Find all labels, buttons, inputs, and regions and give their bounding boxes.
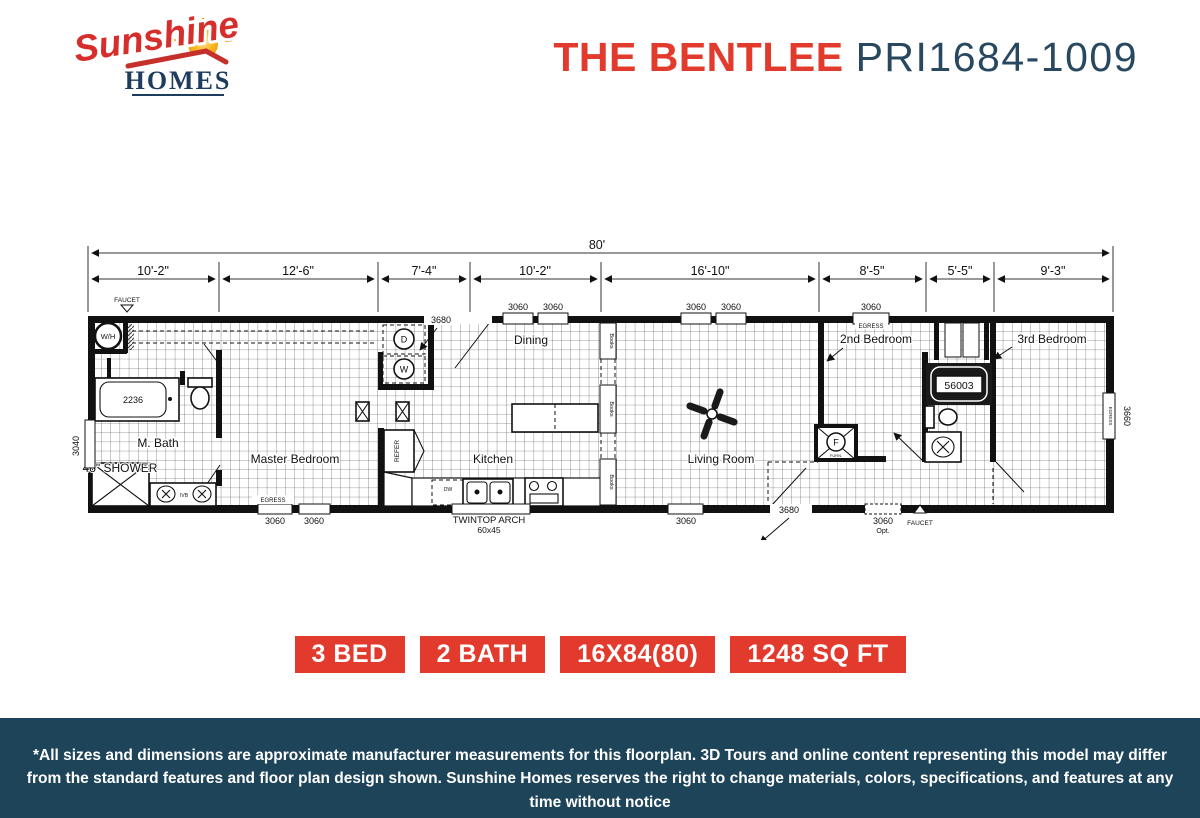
window-size: 3060 [265,516,285,526]
badge-sqft: 1248 SQ FT [730,636,905,673]
water-heater-label: W/H [101,332,116,341]
side-window-size: 3660 [1122,406,1132,426]
egress-label: EGRESS [1108,407,1113,426]
faucet-label: FAUCET [907,520,933,527]
window-size: 3060 [873,516,893,526]
bookcase-column: Books Books Books [600,323,616,505]
disclaimer-text: *All sizes and dimensions are approximat… [20,744,1180,814]
books-label: Books [608,474,614,490]
room-label-dining: Dining [514,333,548,347]
furnace-label: F [833,438,839,448]
refrigerator-label: REFER [394,440,401,462]
books-label: Books [608,401,614,417]
dim-segment: 10'-2" [137,264,169,278]
dishwasher-label: DW [444,487,453,493]
window-size: 3060 [508,302,528,312]
arch-size-label: 60x45 [477,525,500,535]
window-size: 3060 [543,302,563,312]
room-label-bed3: 3rd Bedroom [1017,332,1086,346]
disclaimer-footer: *All sizes and dimensions are approximat… [0,718,1200,818]
dim-segment: 7'-4" [412,264,437,278]
room-label-kitchen: Kitchen [473,452,513,466]
dim-segment: 8'-5" [860,264,885,278]
kitchen-sink-icon [463,479,513,506]
closet-door [963,323,979,357]
window-size: 3060 [861,302,881,312]
overall-dim: 80' [589,240,605,252]
door-size: 3680 [779,505,799,515]
furnace-closet: F FURN. [816,426,856,460]
hatch-strip [128,324,134,350]
window-size: 3060 [721,302,741,312]
sunshine-homes-logo: Sunshine HOMES [62,10,337,110]
room-label-bed2: 2nd Bedroom [840,332,912,346]
page: Sunshine HOMES THE BENTLEEPRI1684-1009 8… [0,0,1200,818]
page-title: THE BENTLEEPRI1684-1009 [553,34,1138,81]
dimension-chain: 80' 10'-2" 12'-6" 7'-4" 10'-2" 16'-10" 8… [88,240,1113,312]
furnace-sub-label: FURN. [830,453,842,458]
model-name: THE BENTLEE [553,34,843,80]
closet-door [945,323,961,357]
dim-segment: 16'-10" [691,264,730,278]
dim-segment: 9'-3" [1041,264,1066,278]
room-label-living: Living Room [688,452,755,466]
books-label: Books [608,333,614,349]
dim-segment: 5'-5" [948,264,973,278]
optional-label: Opt. [876,528,889,535]
window-size: 3060 [676,516,696,526]
badge-size: 16X84(80) [560,636,715,673]
ivb-label: IVB [180,493,189,499]
side-window-size: 3040 [71,436,81,456]
window-size: 3060 [686,302,706,312]
tub-size-label: 2236 [123,395,143,405]
faucet-label: FAUCET [114,297,140,304]
egress-label: EGRESS [260,498,285,504]
dim-segment: 12'-6" [282,264,314,278]
toilet-icon [925,406,934,428]
floor-plan: 80' 10'-2" 12'-6" 7'-4" 10'-2" 16'-10" 8… [0,240,1200,540]
dim-segment: 10'-2" [519,264,551,278]
logo-underline [132,94,224,96]
logo-word-homes: HOMES [125,66,232,95]
door-size: 3680 [431,315,451,325]
dryer-label: D [401,335,408,345]
counter [384,472,412,506]
faucet-icon [121,305,133,312]
window-size: 3060 [304,516,324,526]
tub-size-label: 56003 [944,380,973,392]
washer-label: W [400,365,409,375]
toilet-icon [188,378,212,387]
spec-badges: 3 BED 2 BATH 16X84(80) 1248 SQ FT [0,636,1200,673]
arch-window [452,504,530,514]
badge-baths: 2 BATH [420,636,545,673]
room-label-master: Master Bedroom [251,452,340,466]
room-label-mbath: M. Bath [137,436,178,450]
badge-beds: 3 BED [295,636,405,673]
model-number: PRI1684-1009 [856,34,1138,80]
optional-window [865,504,901,514]
egress-label: EGRESS [858,324,883,330]
